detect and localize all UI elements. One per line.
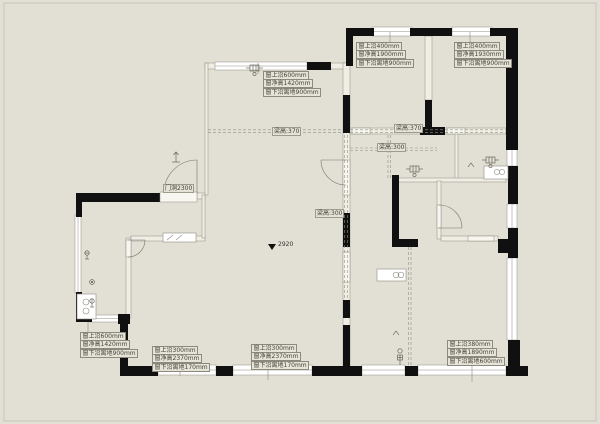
door-opening-entry	[160, 192, 197, 202]
beam-height-label: 梁高:300	[377, 143, 406, 152]
window-annotation-block: 窗上沿600mm 窗净高1420mm 窗下沿离地900mm	[80, 332, 138, 358]
meter-stack-icon	[398, 349, 403, 365]
window-annotation-block: 窗上沿400mm 窗净高1930mm 窗下沿离地900mm	[454, 42, 512, 68]
wall-seg	[508, 340, 520, 370]
window-annotation-block: 窗上沿300mm 窗净高2370mm 窗下沿离地170mm	[251, 344, 309, 370]
door-opening-label: 门洞2300	[163, 184, 194, 193]
entry-arrow-icon	[172, 152, 180, 162]
annotation-line: 窗下沿离地900mm	[356, 59, 414, 68]
wall-seg	[405, 366, 418, 376]
sliding-door-fixture	[163, 233, 196, 242]
wall-seg	[312, 366, 346, 376]
beam-height-label: 梁高:370	[394, 124, 423, 133]
wall-seg	[498, 239, 510, 253]
wall-seg	[346, 366, 362, 376]
annotation-line: 窗下沿离地900mm	[80, 349, 138, 358]
door-arc-bath	[439, 205, 462, 228]
wall-seg	[346, 30, 353, 66]
level-marker-label: 2920	[278, 241, 293, 248]
wall-seg	[216, 366, 233, 376]
kitchen-counter-fixture	[77, 294, 96, 319]
wall-seg	[420, 127, 445, 135]
door-opening-central-1	[343, 160, 350, 195]
wall-left-upper	[205, 63, 208, 195]
wall-hall-vertical	[455, 133, 458, 179]
annotation-line: 窗下沿离地170mm	[152, 363, 210, 372]
vent-mark-icon	[468, 163, 474, 167]
door-opening-hall-1	[352, 128, 370, 134]
water-meter-icon	[85, 251, 89, 259]
wall-seg	[392, 175, 399, 247]
wall-seg	[490, 28, 508, 36]
window-annotation-block: 窗上沿380mm 窗净高1890mm 窗下沿离地600mm	[447, 340, 505, 366]
vanity-fixture	[377, 269, 406, 281]
wall-left-room	[202, 195, 205, 238]
door-opening-central-2	[343, 252, 350, 282]
wall-seg	[76, 193, 82, 217]
wall-seg	[307, 62, 331, 70]
annotation-line: 窗下沿离地900mm	[454, 59, 512, 68]
annotation-line: 窗下沿离地170mm	[251, 361, 309, 370]
level-marker-icon	[268, 244, 276, 250]
wall-seg	[343, 325, 350, 366]
wall-seg	[76, 193, 160, 202]
wall-seg	[392, 239, 418, 247]
wall-seg	[343, 300, 350, 318]
floor-drain-icon	[91, 281, 92, 282]
window-annotation-block: 窗上沿400mm 窗净高1900mm 窗下沿离地900mm	[356, 42, 414, 68]
door-opening-hall-2	[447, 128, 465, 134]
door-opening-bath	[437, 205, 441, 228]
beam-lines	[208, 130, 506, 366]
wall-seg	[410, 28, 452, 36]
door-opening-kitchen	[126, 240, 131, 257]
wall-bedroom-divider	[425, 36, 432, 100]
wall-seg	[508, 166, 518, 204]
door-opening-bath-2	[468, 236, 494, 241]
window-annotation-block: 窗上沿300mm 窗净高2370mm 窗下沿离地170mm	[152, 346, 210, 372]
window-annotation-block: 窗上沿600mm 窗净高1420mm 窗下沿离地900mm	[263, 71, 321, 97]
floor-plan-canvas: 窗上沿600mm 窗净高1420mm 窗下沿离地900mm 窗上沿400mm 窗…	[0, 0, 600, 424]
annotation-line: 窗下沿离地900mm	[263, 88, 321, 97]
wall-seg	[343, 213, 350, 247]
wall-seg	[343, 95, 350, 133]
beam-height-label: 梁高:300	[315, 209, 344, 218]
door-openings	[126, 128, 494, 282]
vent-mark-icon	[393, 331, 399, 335]
annotation-line: 窗下沿离地600mm	[447, 357, 505, 366]
door-arc-central	[321, 160, 346, 185]
beam-height-label: 梁高:370	[272, 127, 301, 136]
heating-manifold-icon	[406, 166, 423, 177]
